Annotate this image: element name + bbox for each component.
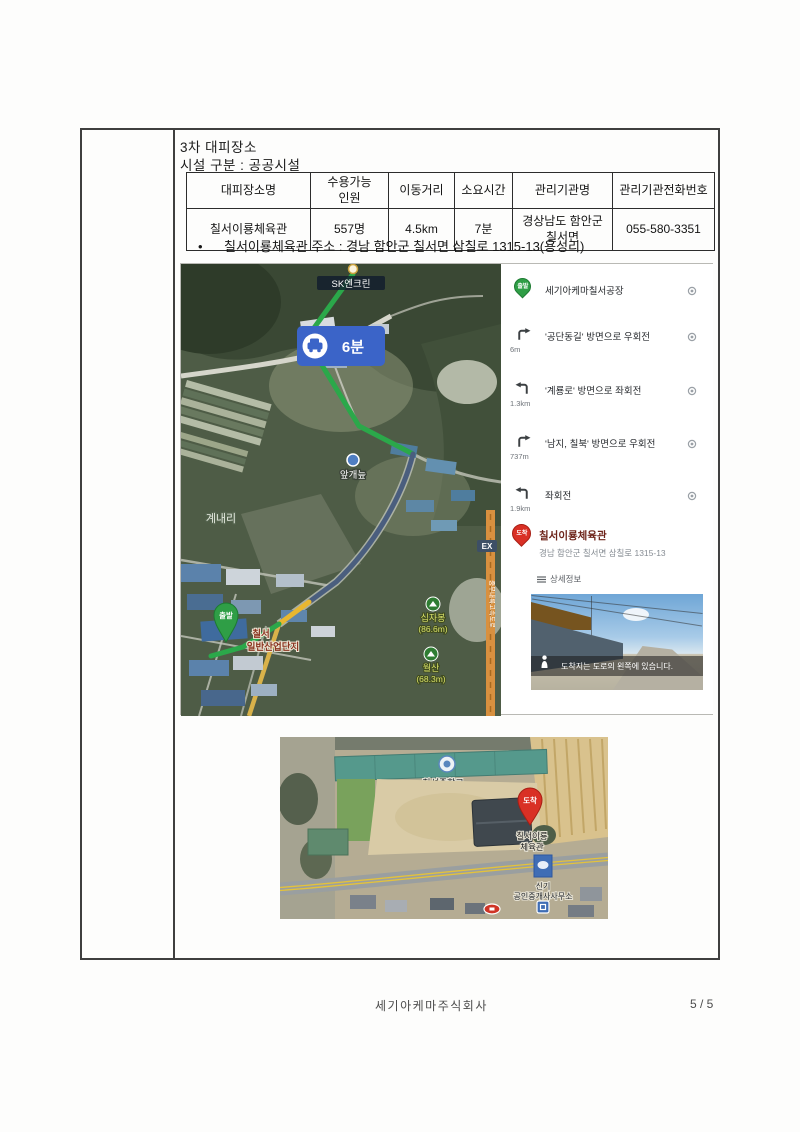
destination-name: 칠서이룡체육관 [539, 528, 607, 543]
destination-pin-icon: 도착 [512, 524, 531, 543]
bullet-icon: • [198, 239, 224, 254]
route-map-screenshot: EX 중부내륙고속도로 SK엔크린 1021 [180, 263, 713, 715]
direction-step-4: 737m '남지, 칠북' 방면으로 우회전 [501, 431, 713, 475]
header-site-name: 대피장소명 [187, 173, 311, 209]
peak-icon-wolsan [424, 647, 438, 661]
duration-badge: 6분 [297, 326, 385, 366]
wetland-label: 앞개늪 [340, 469, 366, 481]
cell-phone: 055-580-3351 [613, 209, 715, 251]
header-distance: 이동거리 [389, 173, 455, 209]
direction-step-2: 6m '공단동길' 방면으로 우회전 [501, 324, 713, 368]
header-time: 소요시간 [455, 173, 513, 209]
bus-stop-icon [484, 904, 500, 914]
directions-panel: 출발 세기아케마칠서공장 6m '공단동길' 방면으로 우회전 [501, 264, 713, 714]
gym-label-line1: 칠서이룡 [516, 831, 547, 841]
start-pin-icon: 출발 [510, 274, 534, 298]
office-label-line1: 신기 [536, 882, 551, 891]
wetland-poi-icon [347, 454, 359, 466]
details-label: 상세정보 [550, 573, 581, 585]
street-view-icon [687, 488, 697, 506]
step-distance: 1.9km [510, 504, 544, 513]
direction-step-5: 1.9km 좌회전 [501, 483, 713, 527]
arrive-pin-label: 도착 [523, 795, 537, 805]
street-view-photo: 도착지는 도로의 왼쪽에 있습니다. [531, 594, 703, 690]
streetview-caption: 도착지는 도로의 왼쪽에 있습니다. [531, 656, 703, 676]
turn-right-icon [514, 431, 532, 454]
step-label: '공단동길' 방면으로 우회전 [545, 329, 683, 343]
header-phone: 관리기관전화번호 [613, 173, 715, 209]
step-distance: 6m [510, 345, 544, 354]
street-view-icon [687, 329, 697, 347]
facility-category: 시설 구분 : 공공시설 [180, 154, 300, 174]
ex-badge-label: EX [482, 542, 493, 551]
peak-icon-sipjabong [426, 597, 440, 611]
footer-company: 세기아케마주식회사 [375, 997, 488, 1014]
street-view-icon [687, 283, 697, 301]
office-poi-icon [538, 861, 549, 869]
turn-left-icon [514, 378, 532, 401]
satellite-map: EX 중부내륙고속도로 SK엔크린 1021 [181, 264, 501, 716]
step-distance: 1.3km [510, 399, 544, 408]
step-label: '계룡로' 방면으로 좌회전 [545, 383, 683, 397]
sk-station-label: SK엔크린 [332, 279, 371, 290]
start-pin-label: 출발 [219, 610, 233, 620]
peak1-name-label: 십자봉 [421, 613, 446, 623]
address-text: 칠서이룡체육관 주소 : 경남 함안군 칠서면 삼칠로 1315-13(용성리) [224, 239, 584, 254]
destination-address: 경남 함안군 칠서면 삼칠로 1315-13 [539, 547, 666, 559]
street-view-icon [687, 436, 697, 454]
start-area-label-line2: 일반산업단지 [247, 641, 299, 653]
sk-station-marker-icon [349, 265, 358, 274]
street-view-icon [687, 383, 697, 401]
step-label: 세기아케마칠서공장 [545, 283, 683, 297]
table-header-row: 대피장소명 수용가능 인원 이동거리 소요시간 관리기관명 관리기관전화번호 [187, 173, 715, 209]
turn-right-icon [514, 324, 532, 347]
step-distance: 737m [510, 452, 544, 461]
footer-page-number: 5 / 5 [690, 997, 713, 1011]
header-agency: 관리기관명 [513, 173, 613, 209]
frame-column-divider [173, 130, 175, 958]
start-area-label-line1: 칠서 [252, 628, 269, 640]
document-page: 3차 대피장소 시설 구분 : 공공시설 대피장소명 수용가능 인원 이동거리 … [0, 0, 800, 1132]
direction-step-1: 출발 세기아케마칠서공장 [501, 278, 713, 322]
satellite-map-art: EX 중부내륙고속도로 SK엔크린 1021 [181, 264, 501, 716]
peak2-elev-label: (68.3m) [416, 674, 445, 684]
expressway-name-label: 중부내륙고속도로 [488, 580, 497, 628]
office-label-line2: 공인중개사사무소 [514, 891, 573, 901]
turn-left-icon [514, 483, 532, 506]
address-bullet: •칠서이룡체육관 주소 : 경남 함안군 칠서면 삼칠로 1315-13(용성리… [198, 236, 584, 255]
step-label: 좌회전 [545, 488, 683, 502]
parking-icon [537, 901, 549, 913]
site-map-screenshot: 칠성중학교 [280, 737, 608, 919]
step-label: '남지, 칠북' 방면으로 우회전 [545, 436, 683, 450]
village-label: 계내리 [206, 512, 236, 525]
site-map-art: 칠성중학교 [280, 737, 608, 919]
header-capacity: 수용가능 인원 [311, 173, 389, 209]
direction-step-3: 1.3km '계룡로' 방면으로 좌회전 [501, 378, 713, 422]
gym-label-line2: 체육관 [520, 842, 544, 852]
details-link: 상세정보 [537, 573, 581, 585]
section-title: 3차 대피장소 [180, 136, 257, 156]
peak2-name-label: 월산 [423, 662, 440, 673]
peak1-elev-label: (86.6m) [418, 624, 447, 634]
duration-label: 6분 [342, 339, 364, 356]
pegman-icon [540, 655, 549, 673]
details-icon [537, 575, 546, 584]
